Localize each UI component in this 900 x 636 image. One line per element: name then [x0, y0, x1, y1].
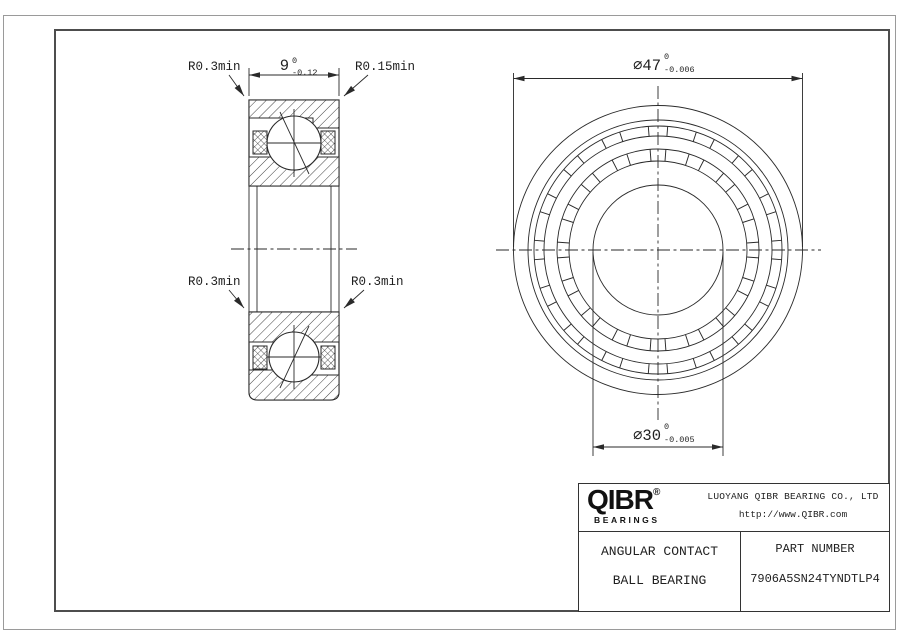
- company-website: http://www.QIBR.com: [697, 509, 889, 520]
- width-dimension: 9 0 -0.12: [249, 56, 339, 96]
- width-dim-lower-tol: -0.12: [292, 68, 318, 78]
- label-r-bottom-left: R0.3min: [188, 275, 241, 289]
- qibr-logo: QIBR® BEARINGS: [579, 484, 697, 531]
- title-block-bottom-row: ANGULAR CONTACT BALL BEARING PART NUMBER…: [579, 532, 889, 611]
- title-block: QIBR® BEARINGS LUOYANG QIBR BEARING CO.,…: [578, 483, 890, 612]
- label-r-top-left: R0.3min: [188, 60, 241, 74]
- width-dim-value: 9: [280, 57, 289, 75]
- leader-line: [229, 290, 244, 308]
- bore-dim-upper-tol: 0: [664, 422, 669, 432]
- top-section: [249, 100, 339, 186]
- company-info: LUOYANG QIBR BEARING CO., LTD http://www…: [697, 484, 889, 531]
- od-dim-upper-tol: 0: [664, 52, 669, 62]
- label-r-bottom-right: R0.3min: [351, 275, 404, 289]
- bore-dim-value: ∅30: [633, 427, 661, 445]
- leader-line: [229, 75, 244, 96]
- bore-dim-lower-tol: -0.005: [664, 435, 695, 445]
- product-title-line2: BALL BEARING: [579, 573, 740, 588]
- cage-section: [321, 131, 335, 154]
- od-dim-lower-tol: -0.006: [664, 65, 695, 75]
- width-dim-upper-tol: 0: [292, 56, 297, 66]
- brand-sub-label: BEARINGS: [594, 515, 697, 525]
- product-title: ANGULAR CONTACT BALL BEARING: [579, 532, 741, 611]
- cage-section: [253, 346, 267, 369]
- front-view: ∅47 0 -0.006 ∅30 0 -0.005: [496, 52, 821, 456]
- leader-line: [344, 75, 368, 96]
- leader-line: [344, 290, 364, 308]
- od-dim-value: ∅47: [633, 57, 661, 75]
- cage-section: [321, 346, 335, 369]
- drawing-sheet: 9 0 -0.12 R0.3min R0.15min R0.3min R0.3m…: [0, 0, 900, 636]
- registered-trademark-icon: ®: [653, 487, 660, 498]
- cross-section-view: 9 0 -0.12 R0.3min R0.15min R0.3min R0.3m…: [188, 56, 415, 400]
- brand-wordmark: QIBR: [587, 484, 653, 515]
- part-number-label: PART NUMBER: [741, 542, 889, 556]
- product-title-line1: ANGULAR CONTACT: [579, 544, 740, 559]
- part-number-cell: PART NUMBER 7906A5SN24TYNDTLP4: [741, 532, 889, 611]
- bottom-section: [249, 312, 339, 400]
- company-name: LUOYANG QIBR BEARING CO., LTD: [697, 491, 889, 502]
- cage-section: [253, 131, 267, 154]
- part-number-value: 7906A5SN24TYNDTLP4: [741, 572, 889, 586]
- label-r-top-right: R0.15min: [355, 60, 415, 74]
- title-block-header-row: QIBR® BEARINGS LUOYANG QIBR BEARING CO.,…: [579, 484, 889, 532]
